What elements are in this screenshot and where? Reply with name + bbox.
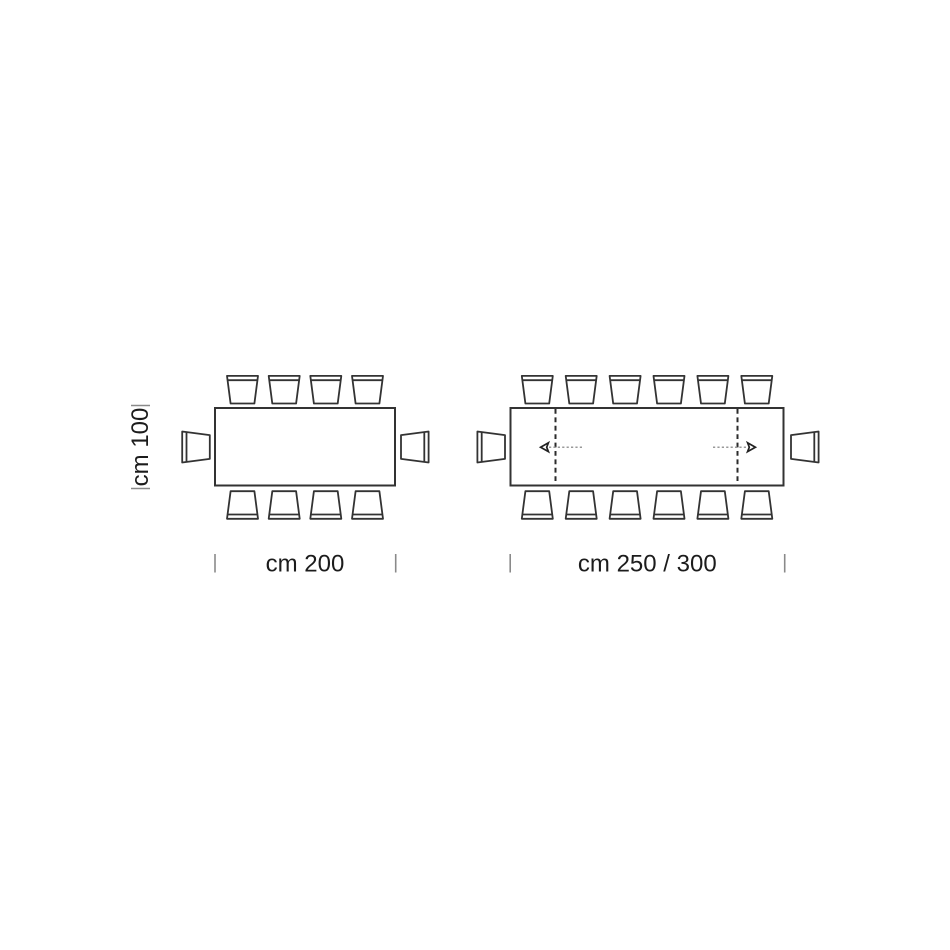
- svg-text:cm 250 / 300: cm 250 / 300: [578, 551, 717, 578]
- svg-text:cm 100: cm 100: [127, 408, 154, 487]
- svg-text:cm 200: cm 200: [266, 551, 345, 578]
